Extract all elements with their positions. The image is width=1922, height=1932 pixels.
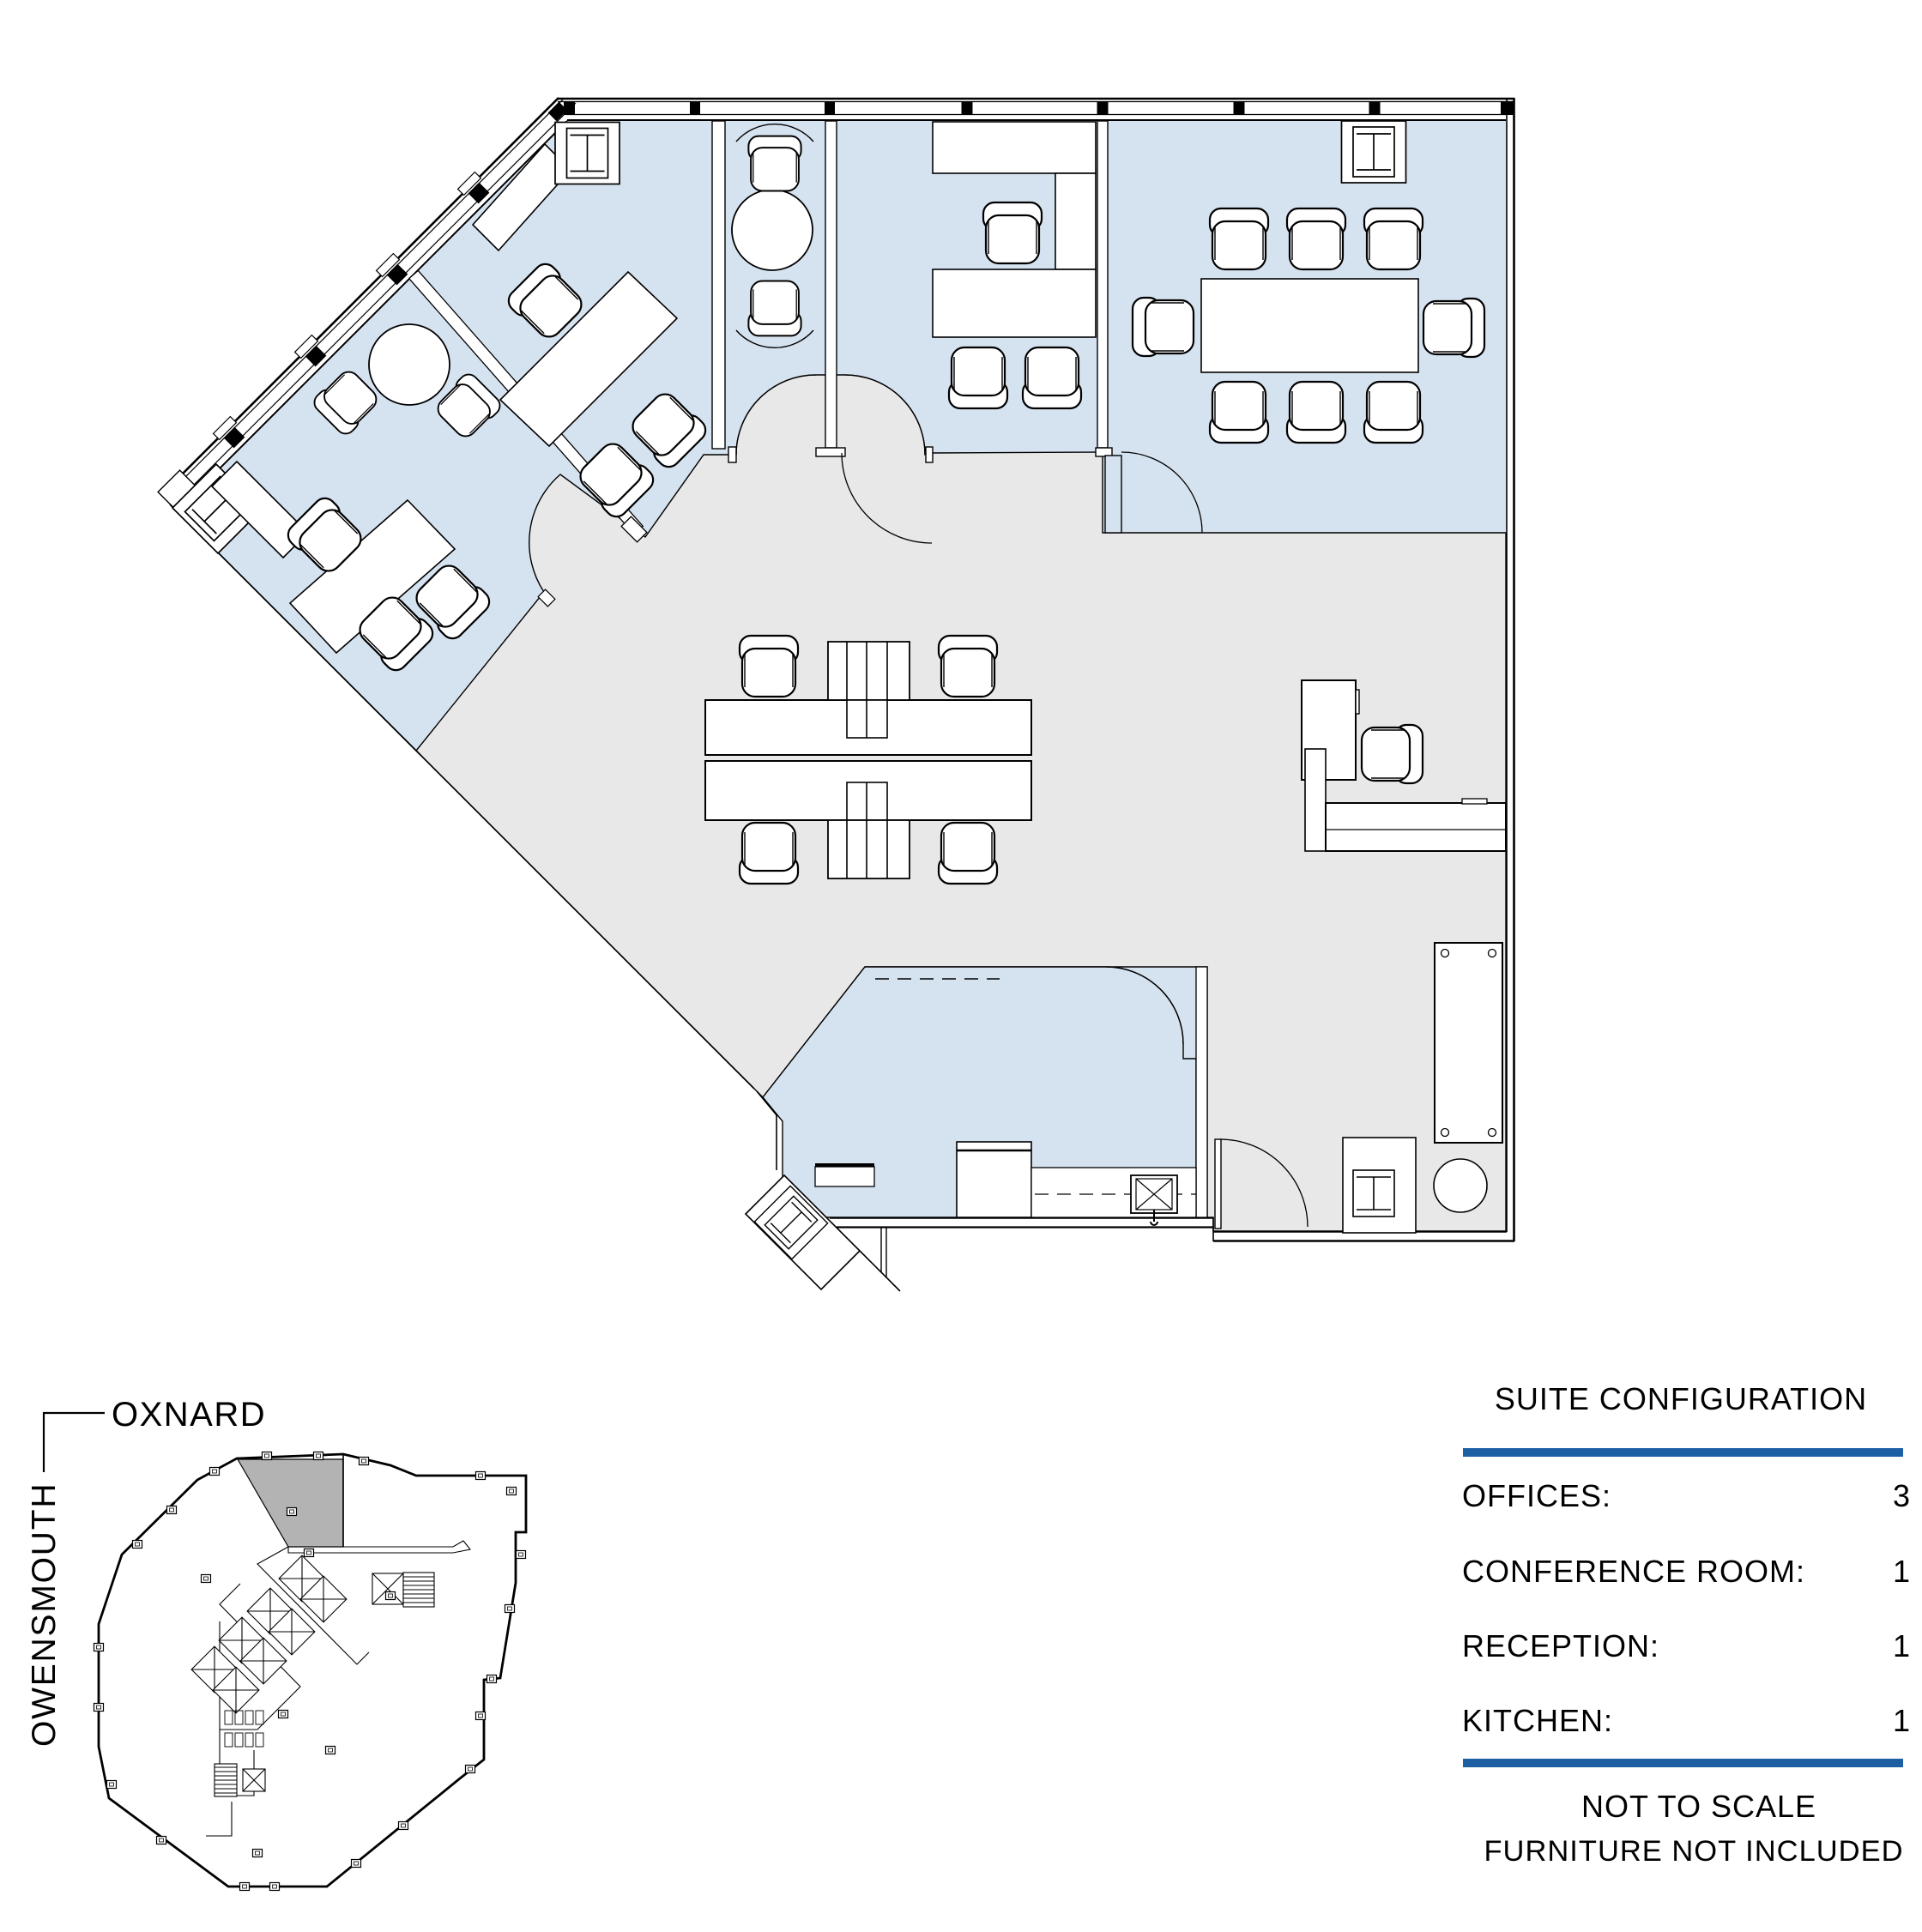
- svg-text:FURNITURE NOT INCLUDED: FURNITURE NOT INCLUDED: [1484, 1835, 1903, 1868]
- svg-text:3: 3: [1893, 1478, 1910, 1513]
- svg-text:1: 1: [1893, 1554, 1910, 1589]
- svg-text:RECEPTION:: RECEPTION:: [1462, 1628, 1659, 1663]
- svg-text:SUITE CONFIGURATION: SUITE CONFIGURATION: [1495, 1381, 1867, 1416]
- svg-text:OXNARD: OXNARD: [112, 1396, 266, 1434]
- svg-text:1: 1: [1893, 1703, 1910, 1738]
- svg-text:KITCHEN:: KITCHEN:: [1462, 1703, 1613, 1738]
- svg-text:NOT TO SCALE: NOT TO SCALE: [1581, 1789, 1816, 1824]
- svg-text:OFFICES:: OFFICES:: [1462, 1478, 1611, 1513]
- svg-text:1: 1: [1893, 1628, 1910, 1663]
- svg-text:CONFERENCE ROOM:: CONFERENCE ROOM:: [1462, 1554, 1805, 1589]
- svg-text:OWENSMOUTH: OWENSMOUTH: [26, 1482, 63, 1747]
